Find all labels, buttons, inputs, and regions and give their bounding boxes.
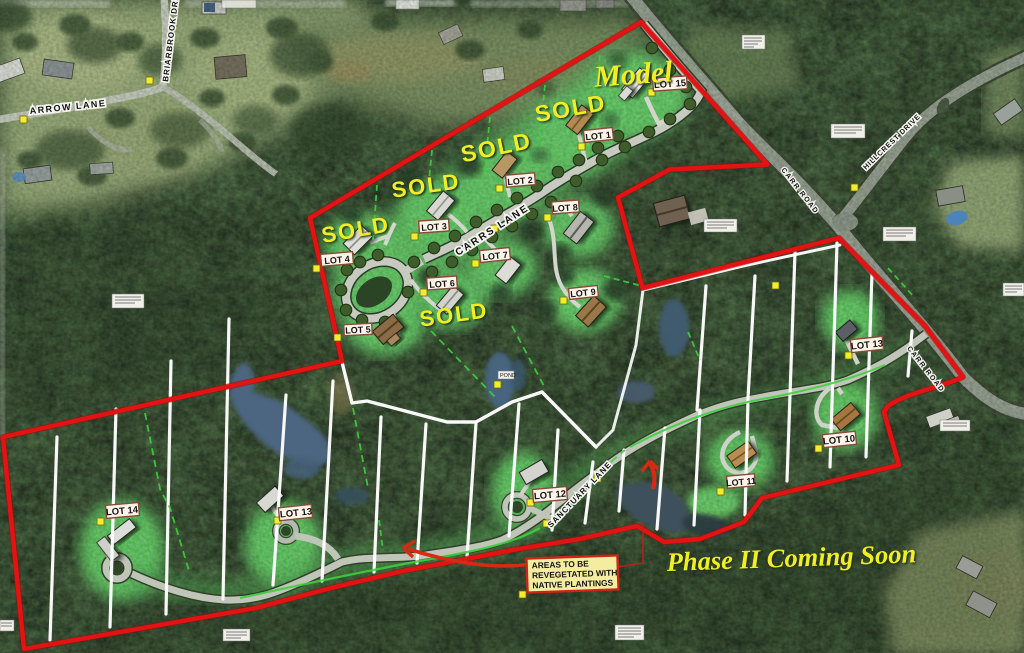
svg-text:LOT 3: LOT 3: [421, 221, 447, 233]
svg-text:Model: Model: [592, 55, 674, 93]
svg-text:LOT 6: LOT 6: [429, 278, 455, 290]
svg-text:LOT 5: LOT 5: [345, 324, 371, 335]
svg-text:LOT 8: LOT 8: [552, 202, 578, 214]
svg-text:POND: POND: [500, 373, 516, 379]
